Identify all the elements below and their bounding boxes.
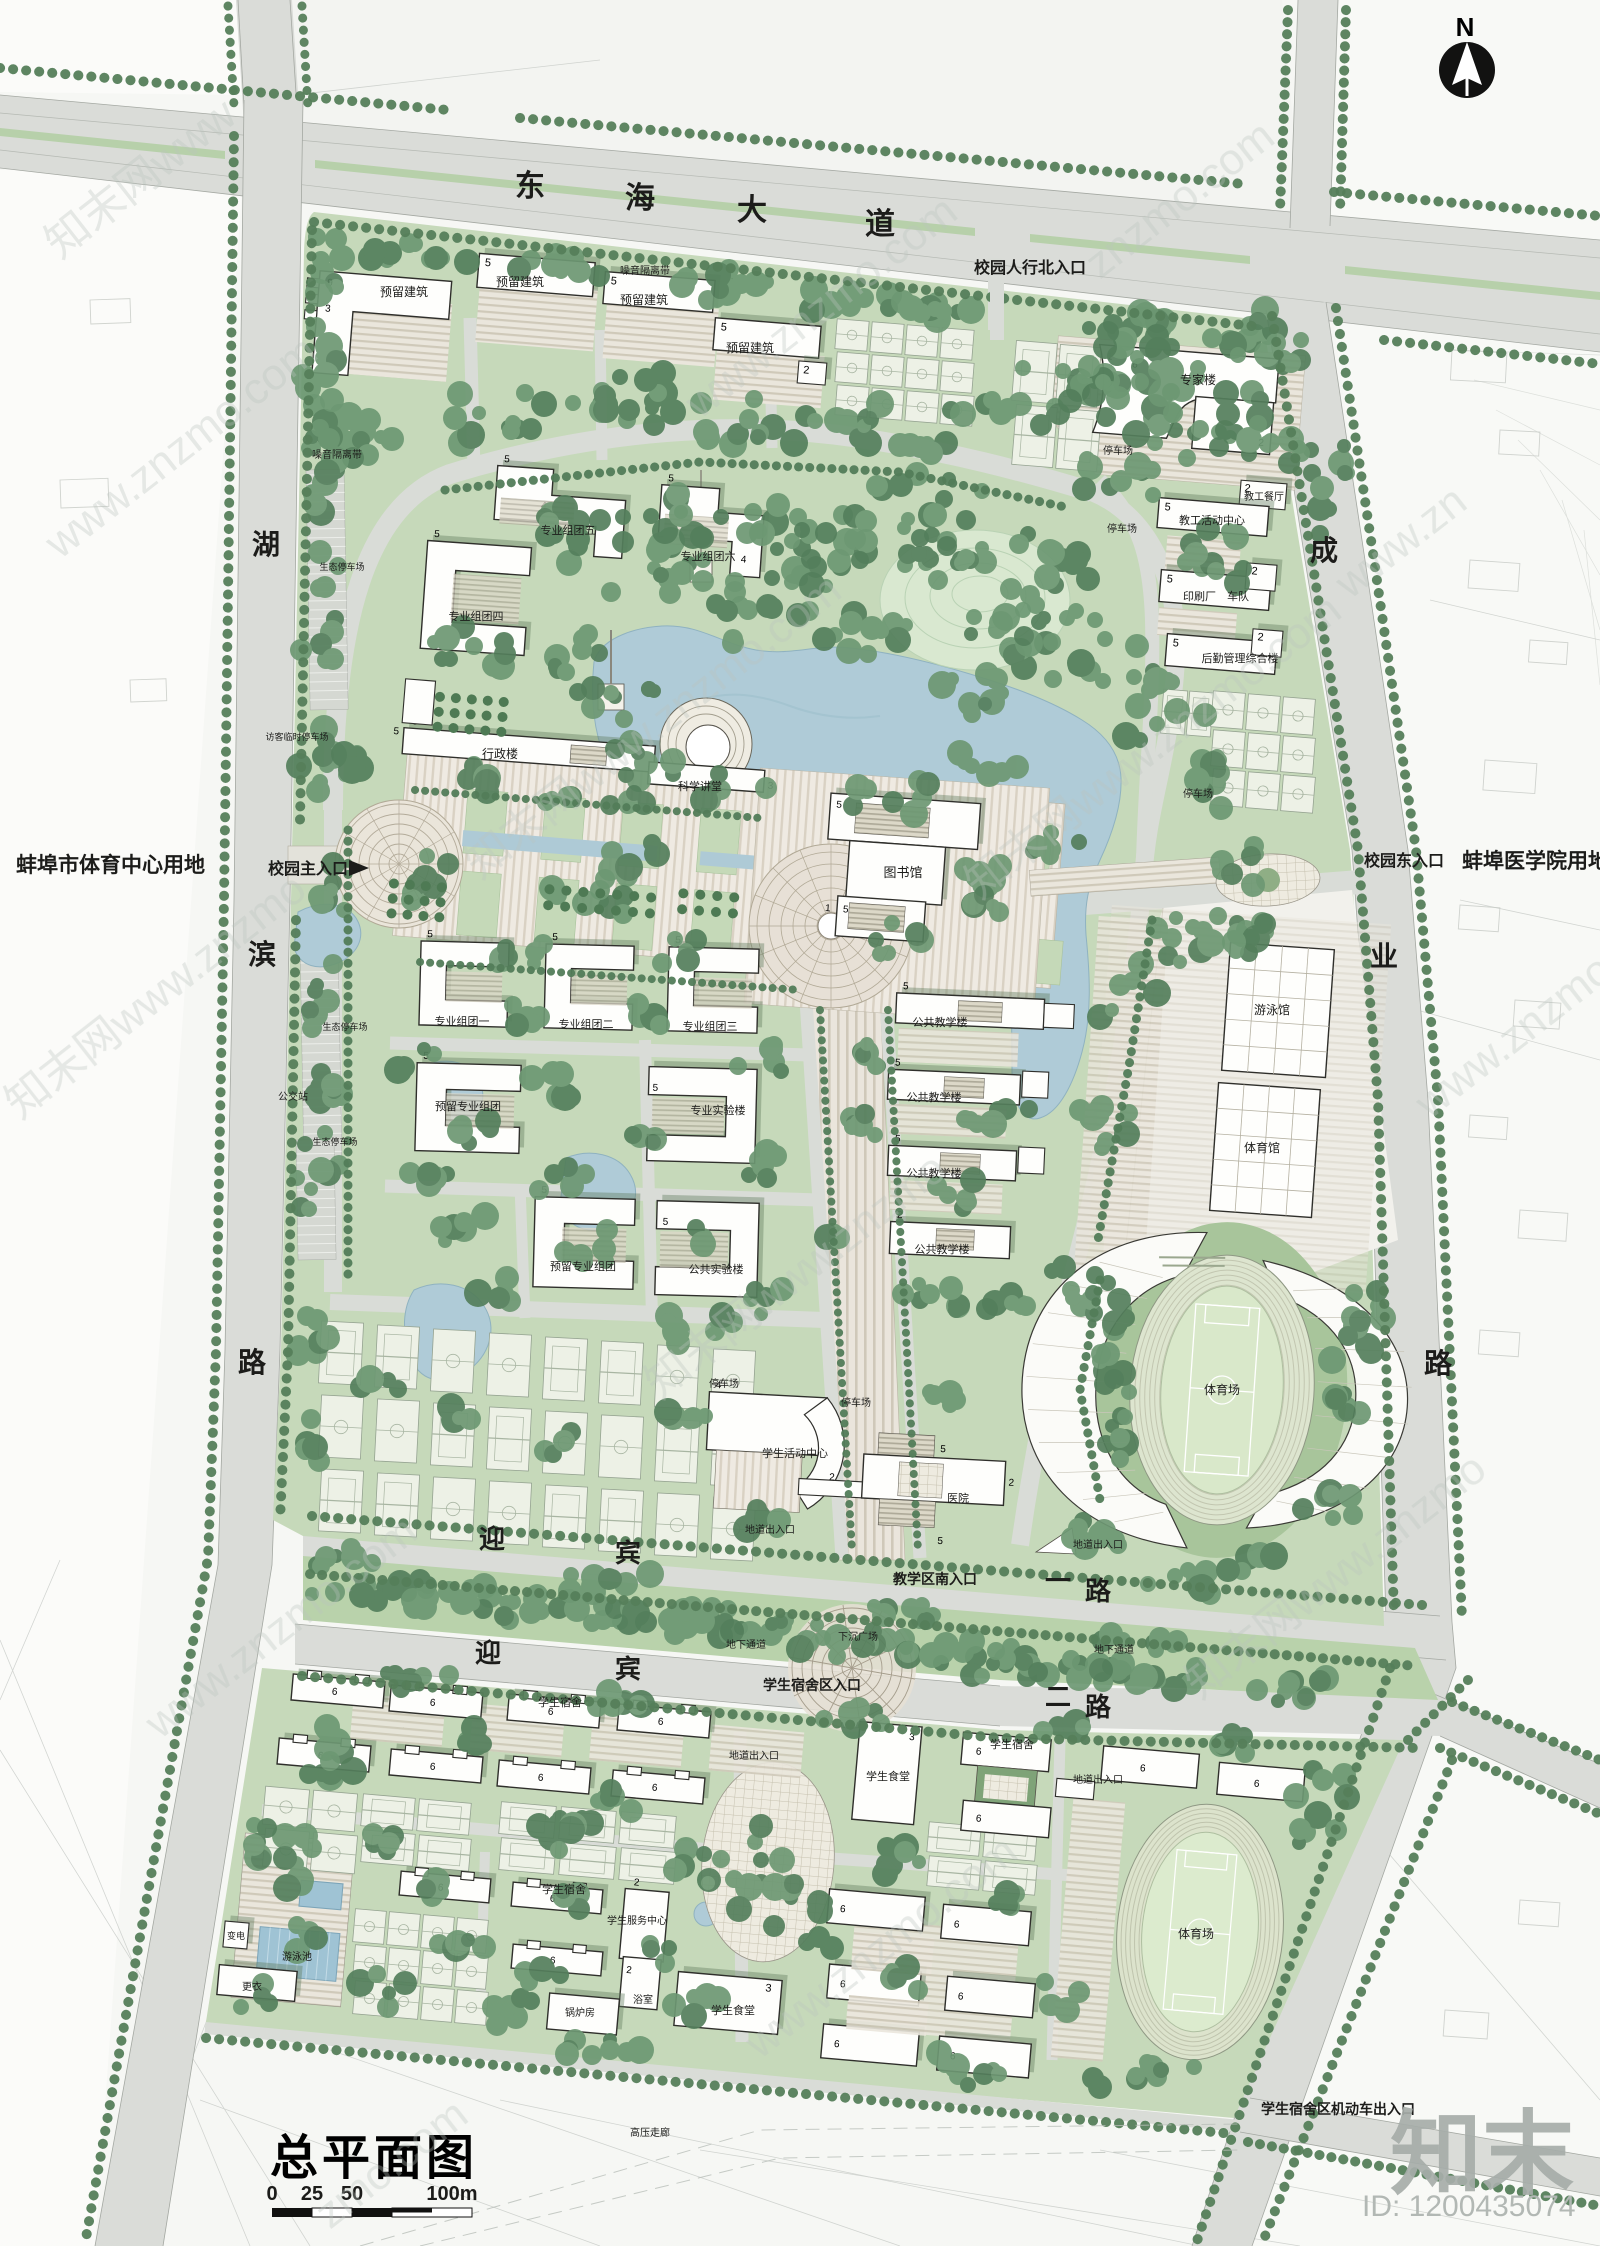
svg-text:2: 2: [1251, 565, 1258, 577]
svg-text:专业组团四: 专业组团四: [449, 609, 504, 623]
svg-text:锅炉房: 锅炉房: [565, 2006, 595, 2019]
svg-text:业: 业: [1370, 941, 1398, 972]
svg-text:宾: 宾: [615, 1654, 641, 1684]
svg-text:3: 3: [765, 1982, 772, 1994]
svg-text:公共实验楼: 公共实验楼: [689, 1262, 744, 1276]
svg-text:专业组团六: 专业组团六: [681, 549, 736, 563]
svg-text:地道出入口: 地道出入口: [729, 1749, 779, 1762]
svg-text:噪音隔离带: 噪音隔离带: [620, 264, 670, 277]
svg-text:印刷厂 车队: 印刷厂 车队: [1183, 589, 1249, 603]
svg-text:更衣: 更衣: [242, 1980, 262, 1993]
svg-text:停车场: 停车场: [1183, 787, 1213, 800]
svg-text:游泳馆: 游泳馆: [1254, 1002, 1290, 1017]
svg-text:地道出入口: 地道出入口: [1073, 1538, 1123, 1551]
svg-text:学生宿舍: 学生宿舍: [538, 1695, 582, 1709]
svg-text:生态停车场: 生态停车场: [312, 1136, 357, 1147]
svg-text:地道出入口: 地道出入口: [745, 1523, 795, 1536]
svg-text:5: 5: [1164, 501, 1171, 513]
svg-text:5: 5: [663, 1217, 669, 1228]
svg-text:停车场: 停车场: [841, 1396, 871, 1409]
svg-text:学生食堂: 学生食堂: [866, 1769, 910, 1783]
svg-text:大: 大: [737, 194, 767, 227]
svg-text:教学区南入口: 教学区南入口: [893, 1571, 977, 1587]
svg-text:宾: 宾: [615, 1538, 641, 1568]
svg-text:高压走廊: 高压走廊: [630, 2126, 670, 2139]
svg-text:专业实验楼: 专业实验楼: [691, 1103, 746, 1117]
svg-text:公共教学楼: 公共教学楼: [913, 1015, 968, 1029]
svg-text:5: 5: [1172, 637, 1179, 649]
svg-text:路: 路: [1085, 1692, 1112, 1722]
svg-text:学生服务中心: 学生服务中心: [607, 1914, 667, 1927]
svg-text:访客临时停车场: 访客临时停车场: [265, 731, 328, 742]
svg-text:100m: 100m: [426, 2183, 477, 2205]
svg-text:二: 二: [1045, 1682, 1071, 1712]
svg-text:N: N: [1456, 12, 1475, 42]
svg-text:噪音隔离带: 噪音隔离带: [312, 448, 362, 461]
svg-text:生态停车场: 生态停车场: [319, 561, 364, 572]
svg-text:5: 5: [937, 1536, 944, 1547]
svg-text:科学讲堂: 科学讲堂: [678, 779, 722, 793]
svg-text:生态停车场: 生态停车场: [322, 1021, 367, 1032]
svg-text:浴室: 浴室: [633, 1993, 653, 2006]
svg-text:5: 5: [610, 275, 617, 287]
svg-text:2: 2: [1008, 1478, 1015, 1489]
svg-text:游泳池: 游泳池: [282, 1950, 312, 1963]
svg-text:海: 海: [625, 182, 655, 215]
svg-text:ID: 1200435074: ID: 1200435074: [1362, 2190, 1576, 2223]
svg-text:停车场: 停车场: [709, 1377, 739, 1390]
svg-text:公交站: 公交站: [278, 1090, 308, 1103]
svg-text:行政楼: 行政楼: [482, 746, 518, 761]
svg-text:5: 5: [427, 929, 433, 940]
svg-text:专业组团三: 专业组团三: [683, 1019, 738, 1033]
svg-text:0: 0: [266, 2183, 277, 2205]
svg-text:路: 路: [1085, 1576, 1112, 1606]
svg-text:路: 路: [238, 1347, 267, 1378]
svg-text:一: 一: [1045, 1566, 1071, 1596]
svg-text:2: 2: [803, 364, 810, 376]
svg-text:学生宿舍区入口: 学生宿舍区入口: [763, 1677, 861, 1693]
svg-text:迎: 迎: [475, 1638, 501, 1668]
svg-text:5: 5: [1166, 573, 1173, 585]
svg-text:专业组团二: 专业组团二: [559, 1017, 614, 1031]
svg-text:校园人行北入口: 校园人行北入口: [974, 258, 1086, 277]
svg-text:5: 5: [895, 1057, 901, 1068]
svg-text:预留建筑: 预留建筑: [620, 292, 668, 307]
svg-text:公共教学楼: 公共教学楼: [915, 1242, 970, 1256]
svg-text:专业组团一: 专业组团一: [435, 1014, 490, 1028]
svg-text:东: 东: [515, 169, 545, 203]
svg-text:体育场: 体育场: [1204, 1382, 1240, 1397]
svg-text:教工餐厅: 教工餐厅: [1244, 490, 1284, 503]
svg-text:预留专业组团: 预留专业组团: [550, 1259, 616, 1273]
svg-text:迎: 迎: [479, 1524, 505, 1554]
svg-text:学生活动中心: 学生活动中心: [762, 1446, 828, 1460]
svg-text:学生食堂: 学生食堂: [711, 2003, 755, 2017]
svg-text:蚌埠医学院用地: 蚌埠医学院用地: [1462, 849, 1600, 873]
svg-text:蚌埠市体育中心用地: 蚌埠市体育中心用地: [16, 853, 205, 877]
svg-text:学生宿舍: 学生宿舍: [542, 1882, 586, 1896]
svg-text:图书馆: 图书馆: [883, 865, 922, 880]
svg-text:下沉广场: 下沉广场: [838, 1630, 878, 1643]
svg-text:专业组团五: 专业组团五: [541, 523, 596, 537]
svg-text:地下通道: 地下通道: [1094, 1643, 1134, 1656]
svg-text:5: 5: [720, 321, 727, 333]
svg-text:2: 2: [829, 1472, 836, 1483]
svg-text:教工活动中心: 教工活动中心: [1179, 514, 1245, 527]
svg-text:5: 5: [484, 257, 491, 269]
svg-text:成: 成: [1310, 535, 1338, 566]
svg-text:5: 5: [903, 981, 909, 992]
svg-text:地道出入口: 地道出入口: [1073, 1773, 1123, 1786]
svg-text:地下通道: 地下通道: [726, 1638, 766, 1651]
svg-text:专家楼: 专家楼: [1180, 372, 1216, 387]
svg-text:5: 5: [940, 1444, 947, 1455]
svg-text:体育馆: 体育馆: [1244, 1140, 1280, 1155]
svg-text:5: 5: [552, 932, 558, 943]
svg-text:预留建筑: 预留建筑: [496, 274, 544, 289]
svg-text:预留专业组团: 预留专业组团: [435, 1099, 501, 1113]
svg-text:学生宿舍: 学生宿舍: [990, 1737, 1034, 1751]
svg-text:路: 路: [1424, 1348, 1453, 1379]
svg-text:公共教学楼: 公共教学楼: [907, 1090, 962, 1104]
svg-text:停车场: 停车场: [1103, 444, 1133, 457]
svg-text:预留建筑: 预留建筑: [380, 284, 428, 299]
svg-text:体育场: 体育场: [1178, 1926, 1214, 1941]
svg-text:停车场: 停车场: [1107, 522, 1137, 535]
svg-text:变电: 变电: [227, 1930, 245, 1941]
svg-text:校园东入口: 校园东入口: [1364, 851, 1444, 870]
svg-text:湖: 湖: [252, 529, 280, 560]
svg-text:5: 5: [652, 1083, 658, 1094]
svg-text:医院: 医院: [947, 1491, 969, 1505]
